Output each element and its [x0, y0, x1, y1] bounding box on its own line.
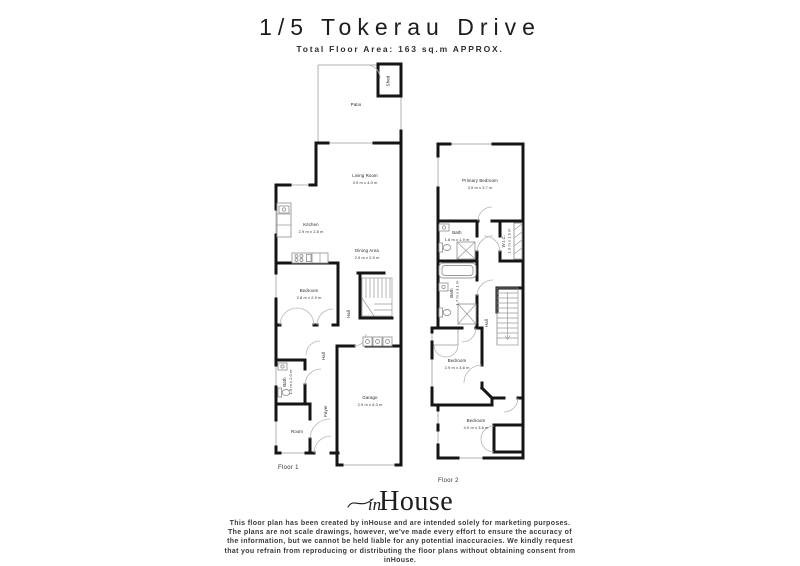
floor1-fixtures	[277, 203, 392, 397]
room-label-living: Living Room	[352, 173, 378, 178]
room-label-bedroom: Bedroom	[300, 288, 319, 293]
room-label-foyer: Foyer	[323, 405, 328, 417]
floor2-plan: Primary Bedroom 3.9 m x 3.7 m Bath 1.8 m…	[428, 140, 528, 470]
room-dims-bedroom: 2.8 m x 2.9 m	[297, 295, 322, 300]
room-dims-bedroom-rear: 4.0 m x 3.6 m	[464, 425, 489, 430]
inhouse-logo: in House	[0, 486, 800, 518]
stairs-down-icon	[497, 288, 518, 345]
room-label-shed: Shed	[386, 75, 391, 86]
bath-toilet-icon	[439, 308, 451, 317]
floor2-windows	[432, 144, 497, 458]
ensuite-sink-icon	[439, 224, 449, 231]
stove-icon	[292, 253, 328, 263]
room-label-hall: Hall	[484, 319, 489, 327]
disclaimer-text: This floor plan has been created by inHo…	[222, 519, 578, 565]
room-dims-kitchen: 2.9 m x 2.8 m	[299, 229, 324, 234]
kitchen-counter-icon	[277, 203, 291, 237]
room-dims-dining: 2.9 m x 2.9 m	[355, 255, 380, 260]
room-label-room: Room	[291, 429, 303, 434]
room-dims-garage: 2.9 m x 6.3 m	[358, 402, 383, 407]
room-label-hall-lower: Hall	[321, 352, 326, 360]
room-label-dining: Dining Area	[355, 248, 379, 253]
room-dims-primary: 3.9 m x 3.7 m	[468, 185, 493, 190]
angled-wall	[482, 388, 492, 398]
room-dims-ensuite: 1.8 m x 1.9 m	[445, 237, 470, 242]
ensuite-toilet-icon	[439, 243, 451, 252]
room-label-garage: Garage	[362, 395, 378, 400]
bathtub-icon	[439, 263, 476, 278]
room-dims-bath: 1.9 m x 2.0 m	[288, 370, 293, 395]
room-label-patio: Patio	[351, 102, 362, 107]
floorplan-page: 1/5 Tokerau Drive Total Floor Area: 163 …	[0, 0, 800, 566]
room-dims-wic: 1.0 m x 1.9 m	[507, 229, 512, 254]
room-dims-bedroom-mid: 2.9 m x 3.6 m	[445, 365, 470, 370]
logo-serif-text: House	[379, 486, 453, 518]
room-label-hall-upper: Hall	[346, 310, 351, 318]
room-label-bedroom-mid: Bedroom	[448, 358, 467, 363]
bathroom-sink-icon	[278, 363, 287, 370]
floor1-plan: Shed Patio Living Room 3.9 m x 4.0 m Kit…	[270, 57, 404, 469]
page-title: 1/5 Tokerau Drive	[0, 14, 800, 41]
room-dims-bath-main: 1.7 m x 3.1 m	[455, 281, 460, 306]
room-label-wic: W.I.C.	[501, 235, 506, 248]
wic-shelves-icon	[514, 223, 522, 259]
floor2-label: Floor 2	[438, 478, 459, 484]
bath-sink-icon	[439, 283, 448, 291]
room-label-kitchen: Kitchen	[303, 222, 319, 227]
room-label-ensuite: Bath	[452, 230, 462, 235]
room-dims-living: 3.9 m x 4.0 m	[353, 180, 378, 185]
room-label-bedroom-rear: Bedroom	[467, 418, 486, 423]
room-label-primary: Primary Bedroom	[462, 178, 498, 183]
ensuite-shower-icon	[457, 242, 475, 259]
stairs-icon	[362, 278, 392, 316]
room-label-bath-main: Bath	[449, 288, 454, 298]
floor1-label: Floor 1	[278, 465, 299, 471]
logo-swash-icon	[347, 494, 375, 512]
room-label-bath: Bath	[282, 377, 287, 387]
floor-area-subtitle: Total Floor Area: 163 sq.m APPROX.	[0, 44, 800, 54]
laundry-appliances-icon	[363, 337, 392, 346]
bath-shower-icon	[458, 304, 476, 324]
